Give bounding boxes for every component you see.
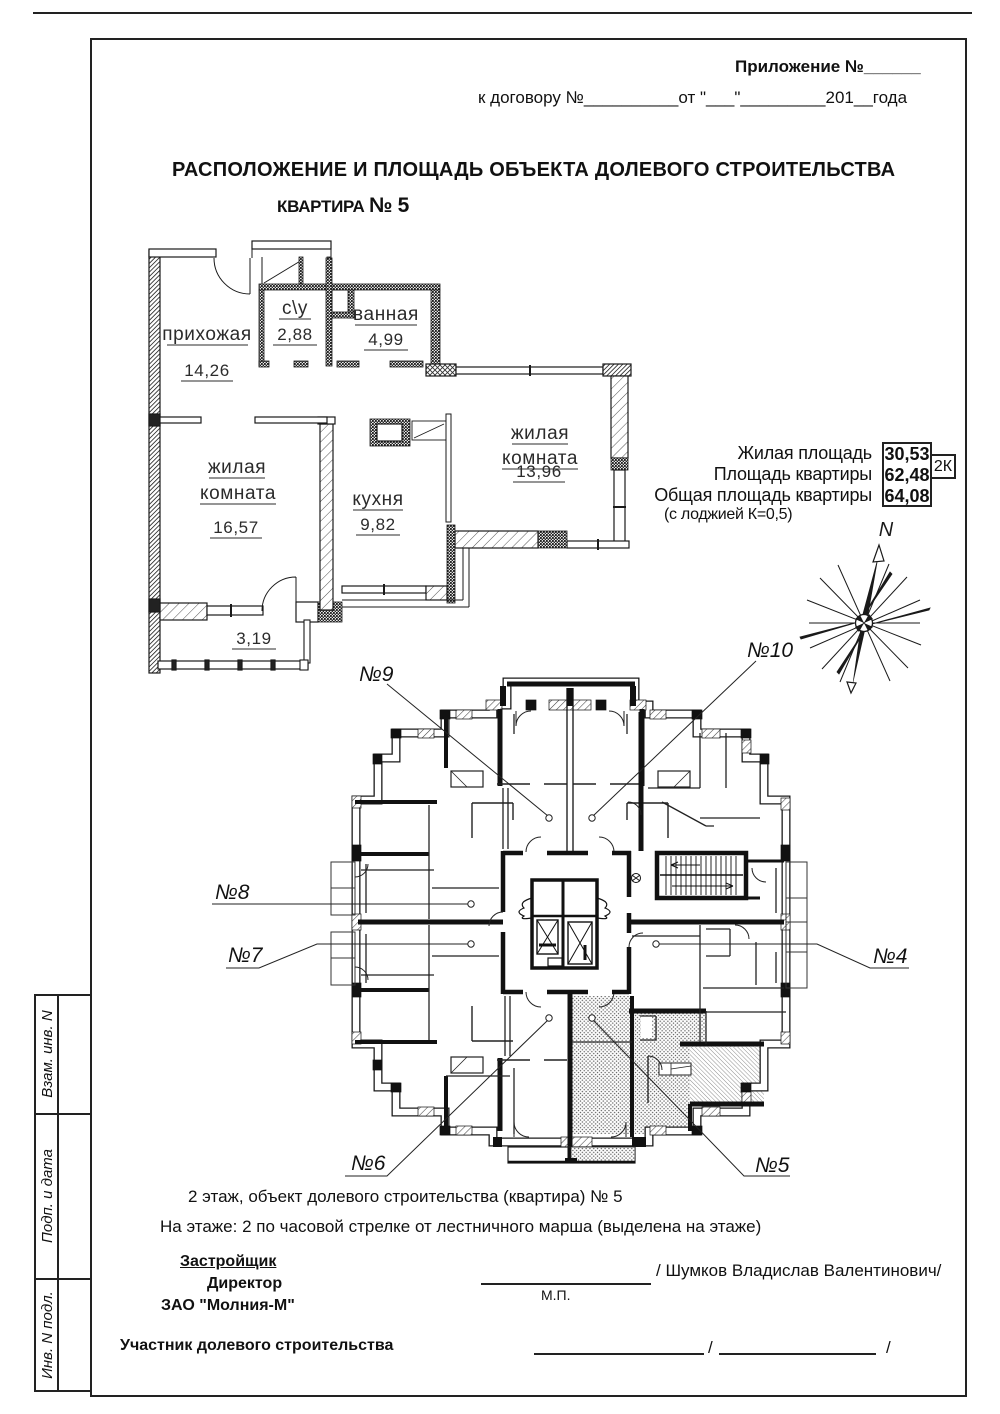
svg-text:14,26: 14,26 xyxy=(184,361,230,380)
svg-text:жилая: жилая xyxy=(208,457,266,478)
svg-text:2,88: 2,88 xyxy=(277,325,313,344)
svg-text:13,96: 13,96 xyxy=(516,462,562,481)
svg-text:№10: №10 xyxy=(747,639,793,662)
svg-text:16,57: 16,57 xyxy=(213,518,259,537)
svg-text:кухня: кухня xyxy=(352,489,403,510)
svg-text:с\у: с\у xyxy=(282,298,308,319)
svg-text:№6: №6 xyxy=(351,1152,386,1175)
svg-text:№9: №9 xyxy=(359,663,394,686)
svg-text:№8: №8 xyxy=(215,881,250,904)
svg-text:№4: №4 xyxy=(873,945,907,968)
svg-text:№7: №7 xyxy=(228,944,264,967)
svg-text:ванная: ванная xyxy=(353,304,419,325)
svg-text:прихожая: прихожая xyxy=(162,324,251,345)
svg-text:комната: комната xyxy=(200,483,276,504)
svg-text:№5: №5 xyxy=(755,1154,790,1177)
svg-text:4,99: 4,99 xyxy=(368,330,404,349)
svg-text:жилая: жилая xyxy=(511,423,569,444)
svg-text:N: N xyxy=(879,519,894,541)
svg-text:9,82: 9,82 xyxy=(360,515,396,534)
